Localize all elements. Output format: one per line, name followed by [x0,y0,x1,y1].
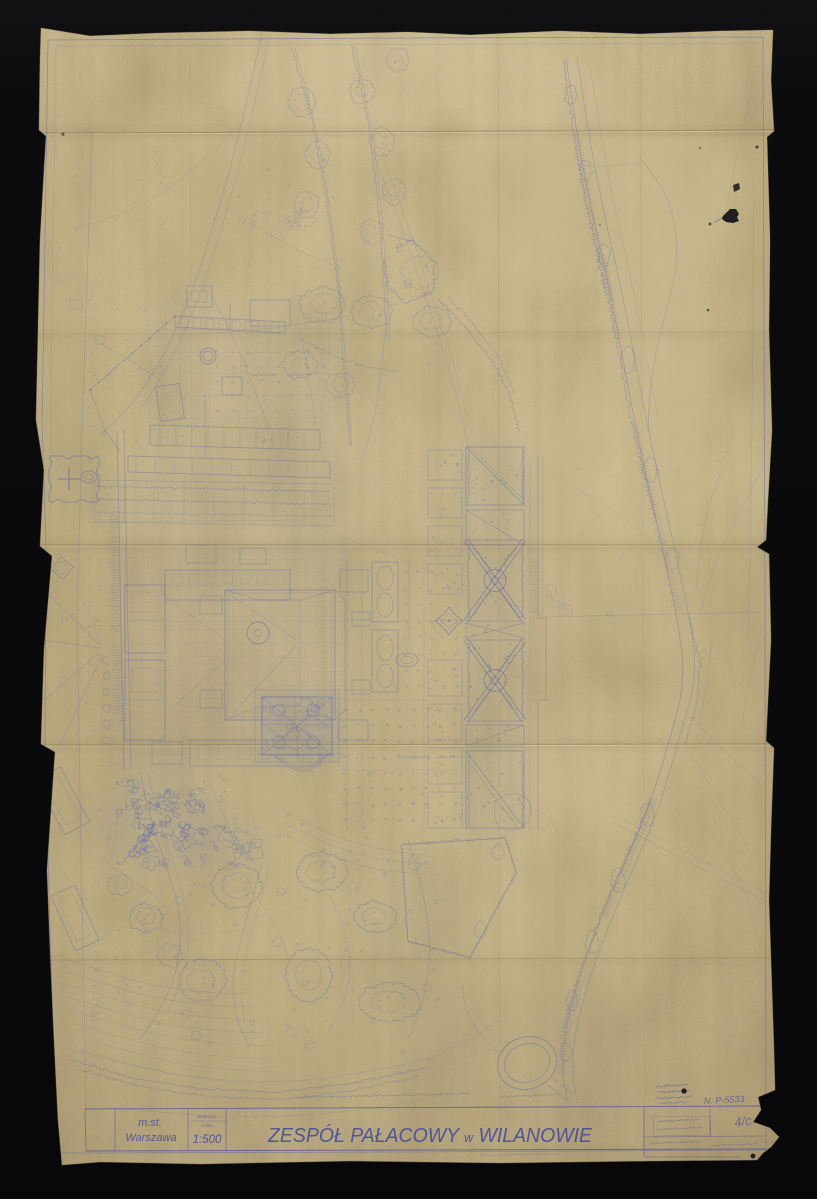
svg-text:N. P-5533: N. P-5533 [704,1094,745,1106]
svg-text:1:500: 1:500 [201,1123,213,1128]
svg-text:1:500: 1:500 [193,1134,222,1146]
svg-text:m.st.: m.st. [138,1117,162,1129]
svg-text:skala poz.: skala poz. [197,1114,217,1119]
svg-text:4/c: 4/c [733,1113,753,1130]
svg-text:ZESPÓŁ PAŁACOWY w WILANOWIE: ZESPÓŁ PAŁACOWY w WILANOWIE [267,1124,592,1147]
svg-text:Warszawa: Warszawa [125,1132,176,1144]
